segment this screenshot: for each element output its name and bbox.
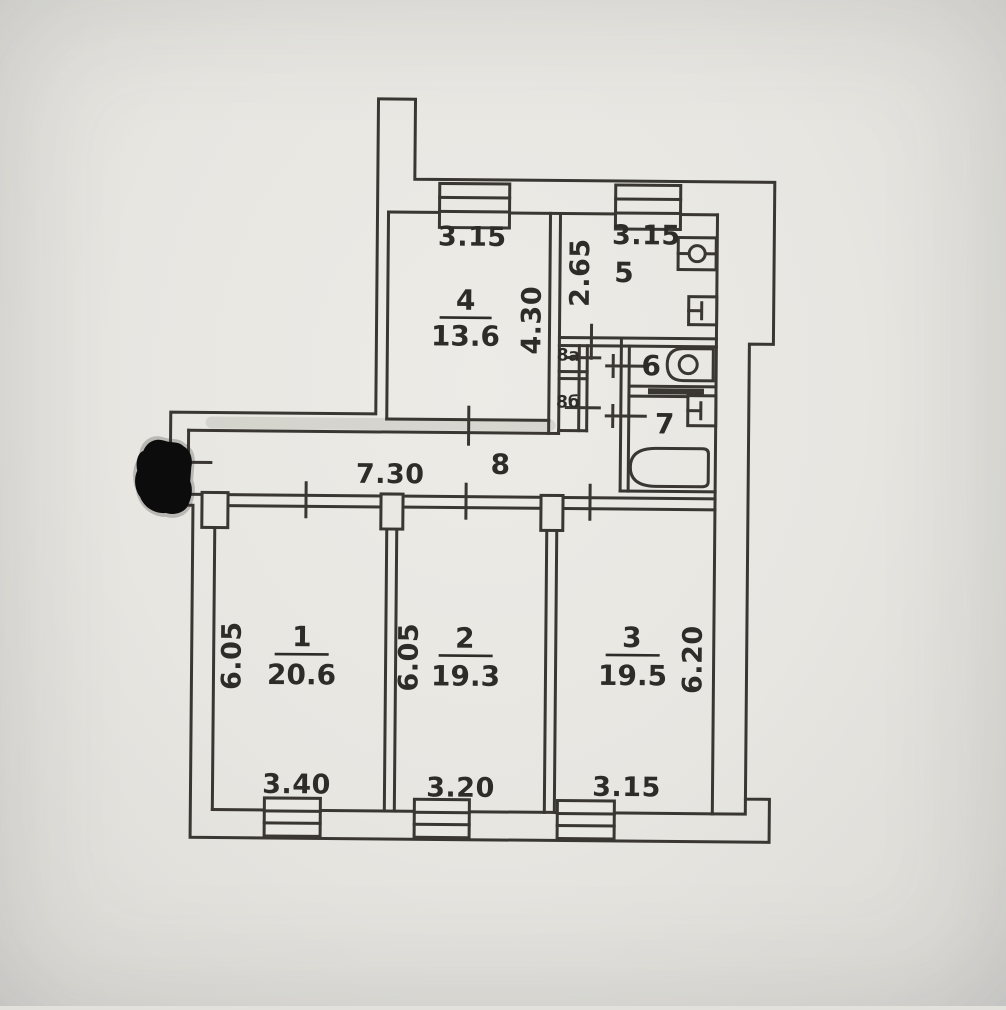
room4-room5-wall-a bbox=[549, 213, 551, 433]
room4-number: 4 bbox=[456, 284, 476, 317]
window-room1 bbox=[264, 798, 320, 836]
bath-number: 7 bbox=[655, 407, 675, 440]
entrance-marker bbox=[133, 436, 196, 518]
window-room3 bbox=[557, 800, 614, 838]
room1-room2-wall-a bbox=[384, 529, 386, 811]
room3-width-dim: 3.15 bbox=[592, 772, 661, 804]
room2-room3-wall-a bbox=[544, 530, 546, 812]
wc-number: 6 bbox=[641, 349, 661, 382]
room3-area: 19.5 bbox=[598, 659, 667, 693]
room2-room3-wall-b bbox=[554, 530, 556, 812]
closet-8a-label: 8а bbox=[557, 345, 580, 365]
toilet-icon bbox=[667, 348, 713, 380]
window-room2 bbox=[414, 799, 469, 837]
kitchen-number: 5 bbox=[614, 256, 634, 289]
room2-depth-dim: 6.05 bbox=[393, 623, 425, 692]
room-number-labels: 4 13.6 5 6 7 8 8а 8б 1 20.6 2 19.3 3 19.… bbox=[267, 253, 676, 695]
junction-rooms-2-3 bbox=[541, 495, 563, 530]
bottom-right-step bbox=[712, 799, 745, 814]
corridor-number: 8 bbox=[490, 448, 510, 481]
door-bath bbox=[605, 404, 647, 428]
room4-width-dim: 3.15 bbox=[438, 221, 507, 253]
room1-width-dim: 3.40 bbox=[262, 769, 331, 801]
rooms-top-wall-a bbox=[188, 494, 715, 499]
junction-room1-left bbox=[202, 492, 228, 527]
floor-plan: 3.15 3.15 2.65 4.30 7.30 6.05 6.05 6.20 … bbox=[0, 0, 1006, 1010]
kitchen-sink-icon bbox=[689, 297, 717, 325]
room4-depth-dim: 4.30 bbox=[516, 286, 548, 355]
room2-area: 19.3 bbox=[431, 659, 500, 693]
left-wall-inner bbox=[212, 505, 215, 809]
wc-bottom-wall-a bbox=[629, 386, 716, 387]
scanned-photo-background: 3.15 3.15 2.65 4.30 7.30 6.05 6.05 6.20 … bbox=[0, 0, 1006, 1006]
closet-8b-label: 8б bbox=[556, 392, 580, 412]
junction-rooms-1-2 bbox=[381, 494, 403, 529]
room1-number: 1 bbox=[292, 620, 312, 653]
room3-number: 3 bbox=[622, 621, 642, 654]
room3-depth-dim: 6.20 bbox=[677, 625, 709, 694]
room4-area: 13.6 bbox=[431, 319, 500, 353]
room1-depth-dim: 6.05 bbox=[216, 621, 248, 690]
kitchen-depth-dim: 2.65 bbox=[565, 238, 597, 307]
bath-bottom-wall bbox=[620, 491, 715, 492]
bathtub-icon bbox=[630, 448, 708, 487]
stove-icon bbox=[678, 238, 716, 270]
room4-left-wall bbox=[387, 212, 389, 419]
room2-number: 2 bbox=[455, 622, 475, 655]
bath-sink-icon bbox=[688, 396, 716, 426]
kitchen-bottom-wall-a bbox=[559, 337, 716, 338]
corridor-length-dim: 7.30 bbox=[356, 459, 425, 491]
kitchen-bottom-wall-b bbox=[559, 345, 716, 346]
room2-width-dim: 3.20 bbox=[426, 772, 495, 804]
floor-plan-drawing: 3.15 3.15 2.65 4.30 7.30 6.05 6.05 6.20 … bbox=[0, 0, 1006, 1010]
kitchen-width-dim: 3.15 bbox=[612, 220, 681, 252]
room1-area: 20.6 bbox=[267, 658, 336, 692]
